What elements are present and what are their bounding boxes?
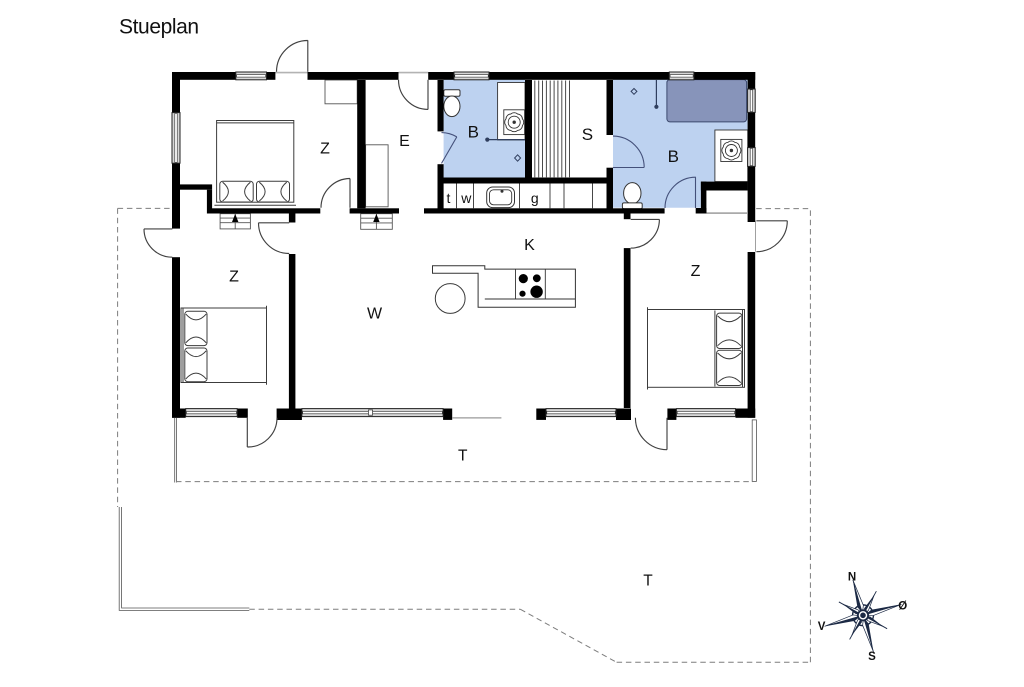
svg-text:E: E bbox=[399, 133, 410, 150]
svg-text:B: B bbox=[468, 122, 479, 141]
svg-text:w: w bbox=[460, 190, 472, 206]
svg-text:Z: Z bbox=[320, 141, 330, 158]
svg-text:S: S bbox=[582, 125, 593, 144]
svg-text:V: V bbox=[818, 621, 826, 633]
svg-text:Stueplan: Stueplan bbox=[119, 16, 199, 39]
svg-text:W: W bbox=[367, 306, 383, 323]
svg-text:Ø: Ø bbox=[898, 600, 907, 612]
svg-text:B: B bbox=[668, 147, 679, 166]
svg-text:t: t bbox=[447, 190, 451, 206]
svg-text:g: g bbox=[531, 190, 539, 206]
svg-text:Z: Z bbox=[229, 269, 239, 286]
svg-text:S: S bbox=[868, 651, 876, 663]
svg-text:T: T bbox=[643, 573, 653, 590]
svg-text:N: N bbox=[848, 571, 856, 583]
svg-text:Z: Z bbox=[691, 263, 701, 280]
svg-text:T: T bbox=[458, 447, 468, 464]
svg-text:K: K bbox=[524, 237, 535, 254]
